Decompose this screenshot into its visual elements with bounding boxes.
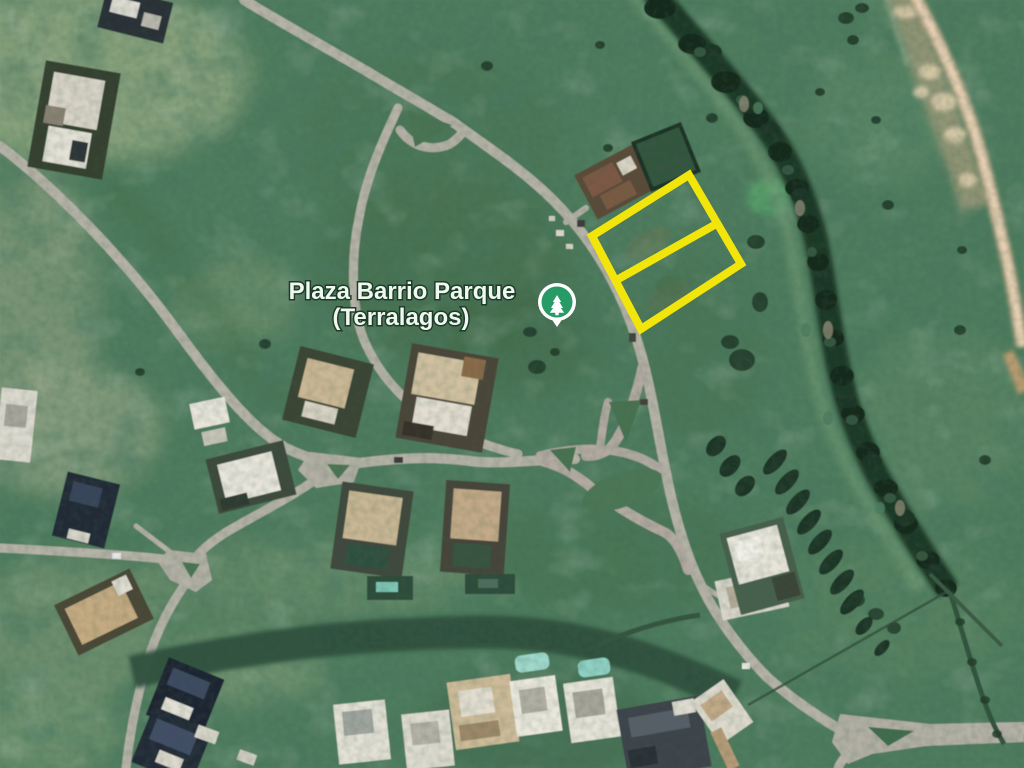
svg-text:(Terralagos): (Terralagos): [333, 304, 470, 331]
svg-text:Plaza Barrio Parque: Plaza Barrio Parque: [289, 278, 516, 305]
